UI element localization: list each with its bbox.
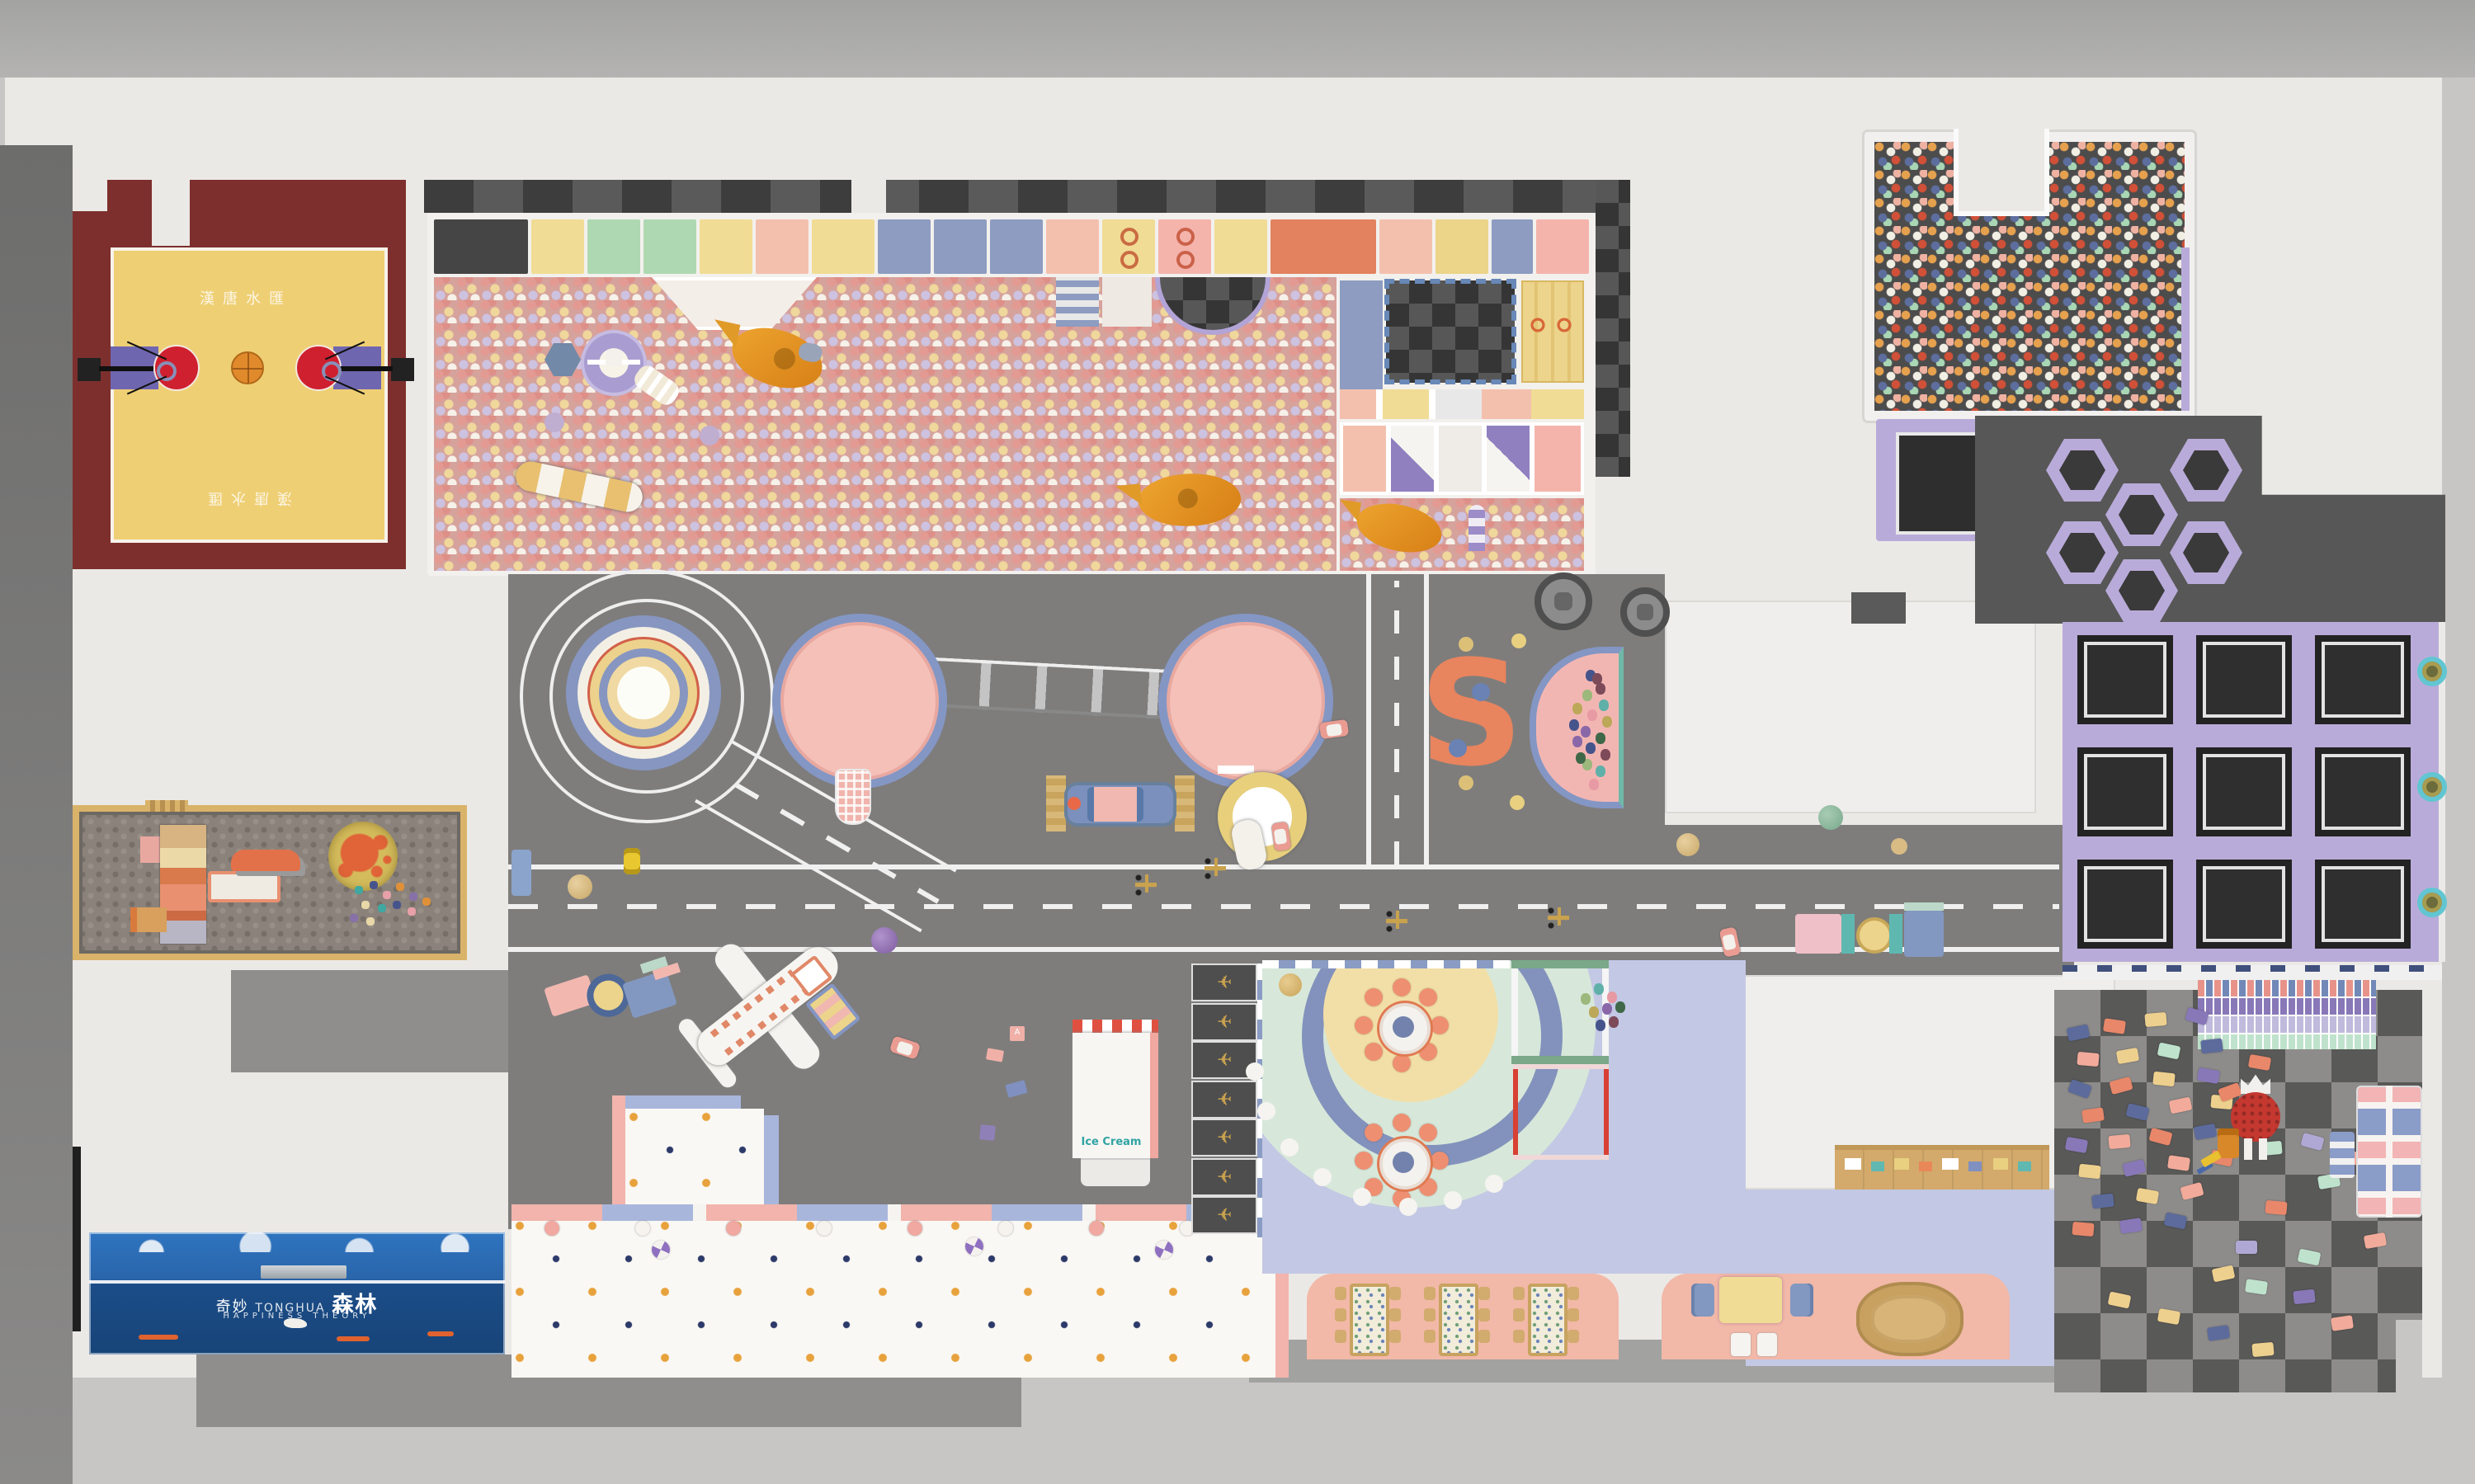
grid-cell-tri2 [1487,426,1530,492]
trampoline-bed [2084,866,2166,942]
ocean-mural: 奇妙 TONGHUA 森林 HAPPINESS THEORY [89,1232,505,1354]
hoop-base-left [78,358,101,381]
candy-ball [907,1221,922,1236]
ballpit-panel-1 [532,219,585,274]
left-dark-wall [0,145,73,1484]
balloon [1586,742,1595,753]
balloon [1576,752,1585,763]
lego-brick [2197,1067,2220,1084]
ballpit-panel-14 [1270,219,1376,274]
ballpit-panel-16 [1435,219,1487,274]
court-name-bottom: 漢唐水匯 [163,488,328,510]
spinning-top-2 [1620,587,1670,637]
lego-slide-small [2330,1132,2355,1178]
basketball-zone-step [73,180,107,211]
c2-blue-chair-2 [1790,1284,1813,1317]
foam-pit-notch [1954,129,2049,216]
c2-blue-chair-1 [1691,1284,1714,1317]
party-balloon [1594,983,1603,994]
lego-brick [2108,1291,2132,1308]
ball-tan-1 [568,874,592,899]
ballpit-panel-row [434,219,1589,274]
right-room-panelstrip [1340,389,1584,419]
floor-dot [1485,1175,1503,1193]
lego-brick [2103,1018,2126,1034]
lego-brick [2122,1159,2146,1177]
balloon [1600,749,1610,760]
party-stool [1392,978,1410,996]
party-green-shelf-1 [1511,960,1609,968]
sand-toy [370,881,378,889]
lego-brick [2185,1007,2209,1025]
pink-platform-2 [1158,614,1333,789]
party-stool [1392,1053,1410,1072]
s-sculpture: S [1419,640,1501,792]
lego-brick [2072,1222,2094,1237]
mural-foliage [89,1232,505,1252]
trampoline-cell-6 [2315,747,2411,836]
spring-rider-icon: ✈ [1193,1120,1256,1152]
spring-rider-icon: ✈ [1193,1004,1256,1035]
lego-brick [2091,1194,2114,1209]
party-green-shelf-2 [1511,1056,1609,1064]
balloon [1592,673,1601,684]
lego-brick [2265,1200,2287,1215]
trampoline-bed [2203,642,2285,718]
sand-pit-ladder [145,800,188,812]
ballpit-panel-11 [1102,219,1155,274]
dining-chair [1389,1287,1401,1300]
party-gold-ball [1279,973,1302,996]
grid-cell-tri [1391,426,1434,492]
balloon [1596,766,1605,776]
dining-chair [1567,1330,1579,1343]
party-stool [1419,988,1437,1006]
sand-toy [355,886,363,894]
dining-chair [1567,1287,1579,1300]
right-room-blue-wall [1340,280,1383,396]
lego-brick [2077,1052,2099,1067]
toy-block-4 [979,1124,996,1141]
top-wall-band [0,0,2475,78]
tricycle-2 [1386,911,1407,932]
dining-chair [1478,1287,1490,1300]
sand-toy [408,907,416,916]
right-room-grid [1340,422,1584,495]
lego-brick [2200,1039,2223,1054]
csofa-pink [1795,914,1841,954]
party-balloon [1607,992,1616,1002]
toddler-wall-blue-top [625,1095,741,1109]
party-balloon [1602,1003,1611,1014]
trampoline-cell-5 [2196,747,2292,836]
lego-brick [2109,1076,2133,1095]
dining-chair [1513,1330,1525,1343]
sand-wave-bridge [231,850,300,871]
s-dot-blue-1 [1472,683,1490,701]
c2-oval-booth [1856,1282,1963,1356]
foam-pit-purple-edge [2181,247,2190,411]
toddler-floor-lower [511,1218,1287,1378]
lego-brick [2148,1128,2172,1146]
road-vert-dashes [1394,581,1399,864]
basketball-icon [231,351,264,384]
trampoline-cell-3 [2315,635,2411,724]
train-nose [1068,797,1081,810]
party-frame-bottom [1513,1155,1609,1160]
lego-brick [2207,1325,2230,1340]
bench-blue-left [511,850,531,896]
lego-slide-large [2356,1086,2422,1218]
party-stool [1430,1151,1448,1169]
party-wall-striped [1262,960,1510,968]
party-stool [1365,1043,1383,1061]
lego-brick [2298,1248,2322,1265]
ballpit-mat [1102,277,1152,327]
lego-brick [2248,1054,2271,1071]
party-frame-top [1513,1064,1609,1069]
s-letter: S [1419,629,1524,799]
trampoline-cell-1 [2077,635,2173,724]
lego-brick [2164,1212,2188,1229]
ballpit-panel-9 [990,219,1043,274]
lego-brick [2364,1232,2387,1249]
sand-slide [208,871,280,902]
party-balloon [1609,1016,1618,1027]
floor-dot [1399,1198,1417,1216]
brick-figure-legs [2244,1138,2267,1160]
s-dot-blue-2 [1449,739,1467,757]
candy-ball [1089,1221,1104,1236]
slide-divider [2386,1086,2392,1218]
balloon [1589,779,1598,789]
lego-brick [2180,1182,2204,1200]
party-table-2 [1379,1138,1431,1190]
floor-dot [1280,1138,1299,1157]
ballpit-panel-17 [1491,219,1533,274]
mural-bench [261,1265,346,1279]
lego-brick [2125,1103,2149,1121]
court-name-top: 漢唐水匯 [163,287,328,309]
dining-chair [1335,1287,1346,1300]
spring-rider-icon: ✈ [1193,1198,1256,1229]
dining-chair [1389,1330,1401,1343]
dining-chair [1513,1308,1525,1321]
road-vert-left [1366,574,1370,866]
party-stool [1354,1015,1372,1034]
road-dashes-center [508,904,2059,909]
dining-chair [1478,1308,1490,1321]
trampoline-cell-8 [2196,860,2292,949]
ballpit-top-walkway [424,180,1630,213]
toddler-room-upper [625,1109,764,1218]
lego-brick [2152,1072,2176,1087]
lego-brick [2108,1134,2130,1149]
sand-toy [409,893,417,901]
grid-cell-white [1439,426,1482,492]
mural-waterline [89,1280,505,1284]
dining-table-1 [1350,1284,1389,1356]
play-train-body [1064,782,1176,827]
trampoline-cell-2 [2196,635,2292,724]
ballpit-right-walkway [1596,180,1630,477]
lego-brick [2081,1107,2105,1123]
spring-rider-6: ✈ [1191,1157,1257,1195]
lego-brick [2331,1315,2354,1331]
balloon [1581,726,1590,737]
left-black-strip [73,1147,81,1331]
party-balloon [1596,1020,1605,1030]
sand-toy [383,891,391,899]
party-zone [1262,960,1746,1274]
pit-cube [606,350,622,366]
lego-brick [2245,1279,2268,1294]
sand-climb-ramp [140,836,160,863]
c2-white-chair-2 [1757,1333,1777,1356]
kitchen-items [1845,1158,2039,1173]
tricycle-1 [1135,874,1157,896]
ballpit-panel-13 [1214,219,1267,274]
lego-brick [2157,1042,2181,1059]
sand-toy [378,904,386,912]
monkey-ring [1176,228,1195,246]
mural-fish-3 [427,1331,454,1336]
lego-brick [2293,1289,2316,1305]
playground-floor-plan: 漢唐水匯 漢唐水匯 奇妙 TONGHUA 森林 HAPPINESS THEORY [0,0,2475,1484]
balloon [1572,703,1582,714]
trampoline-bed [2322,754,2404,830]
lego-brick [2169,1096,2193,1114]
balloon [1582,690,1591,700]
dining-chair [1478,1330,1490,1343]
balloon [1596,683,1605,694]
block-letter: A [1015,1028,1021,1038]
trampoline-bed [2322,642,2404,718]
party-stool [1354,1151,1372,1169]
sand-toy [366,917,375,926]
court-entrance-pillar [152,180,190,246]
party-balloon [1615,1001,1624,1012]
road-line-top [508,864,2059,869]
mural-bird [284,1318,307,1328]
pit-purple-ball-1 [544,412,564,432]
s-dot-gold-2 [1459,775,1473,790]
trampoline-cell-9 [2315,860,2411,949]
dining-chair [1424,1308,1435,1321]
striped-pole [1468,505,1485,551]
dunk-ring-3 [2417,888,2447,917]
trampoline-bed [2084,642,2166,718]
lego-brick [2236,1241,2257,1254]
sand-toy [393,901,401,909]
toy-bus-yellow [624,848,640,874]
sand-block-small [130,907,167,932]
spring-rider-4: ✈ [1191,1080,1257,1118]
party-wall-v1 [1511,968,1518,1058]
grid-cell-pink2 [1534,426,1581,492]
ballpit-panel-3 [644,219,697,274]
right-room-darkfloor [1386,280,1515,383]
ballpit-panel-7 [879,219,931,274]
walkway-gap [851,180,886,213]
balloon [1602,716,1611,727]
balloon [1572,736,1582,747]
mesh-climb-tube [835,769,871,825]
lego-brick [2212,1265,2236,1282]
sand-toy [361,901,370,909]
train-canopy [1087,787,1143,822]
trampoline-cell-7 [2077,860,2173,949]
white-room-block [1666,602,2034,812]
lego-brick [2065,1137,2088,1153]
brick-robot [2218,1128,2239,1158]
lego-brick [2144,1012,2166,1027]
toddler-border-wall [511,1204,1287,1221]
balloon [1599,700,1608,710]
party-stool [1419,1124,1437,1142]
monkey-ring [1120,251,1138,269]
truck-cab [1081,1158,1150,1186]
ball-tan-3 [1891,838,1907,855]
ballpit-panel-0 [434,219,529,274]
ballpit-panel-6 [812,219,875,274]
spring-rider-icon: ✈ [1193,1159,1256,1190]
mural-fish-1 [139,1335,178,1340]
party-table-1 [1379,1003,1431,1054]
dining-chair [1335,1308,1346,1321]
dining-table-2 [1439,1284,1478,1356]
ballpit-ramp [1056,277,1099,327]
sand-corridor [231,970,520,1072]
party-balloon [1589,1006,1598,1017]
party-stool [1392,1113,1410,1131]
spring-rider-2: ✈ [1191,1002,1257,1040]
pit-purple-ball-2 [700,426,719,445]
csofa-blue [1904,911,1944,957]
party-balloon [1581,993,1590,1004]
dining-chair [1567,1308,1579,1321]
lego-brick [2067,1079,2092,1099]
trampoline-bed [2203,866,2285,942]
party-red-frame-l [1513,1064,1518,1160]
spring-rider-7: ✈ [1191,1196,1257,1234]
party-stool [1430,1015,1448,1034]
mural-fish-2 [337,1336,370,1341]
ballpit-panel-15 [1379,219,1431,274]
candy-ball [817,1221,832,1236]
candy-ball [635,1221,650,1236]
balloon [1596,733,1605,743]
candy-ball [998,1221,1013,1236]
play-train-ramp-left [1046,775,1066,832]
hoop-base-right [391,358,414,381]
ballpit-panel-12 [1158,219,1211,274]
sofa-blue [622,970,677,1019]
spring-rider-icon: ✈ [1193,965,1256,996]
spring-rider-icon: ✈ [1193,1081,1256,1113]
ballpit-panel-2 [588,219,641,274]
sand-toy [350,914,358,922]
dining-chair [1335,1330,1346,1343]
grid-cell-pink [1343,426,1386,492]
csofa-drum [1856,917,1893,954]
dining-chair [1424,1330,1435,1343]
truck-awning [1072,1020,1158,1033]
pink-platform-1 [772,614,947,789]
floor-dot [1353,1188,1371,1206]
floor-dot [1444,1191,1462,1209]
floor-dot [1246,1062,1264,1081]
dunk-ring-2 [2417,772,2447,802]
sand-toy [422,897,431,906]
sand-toy [396,883,404,891]
dining-chair [1424,1287,1435,1300]
candy-ball [544,1221,559,1236]
lego-brick [2119,1218,2143,1233]
trampoline-cell-4 [2077,747,2173,836]
play-kitchen-counter [1835,1145,2049,1190]
lego-brick [2300,1133,2324,1151]
monkey-ring [1120,228,1138,246]
dining-chair [1389,1308,1401,1321]
tricycle-3 [1548,907,1569,929]
lego-brick [2194,1124,2217,1140]
tricycle-4 [1204,858,1226,879]
lego-brick [2116,1048,2139,1064]
toy-block-a: A [1010,1026,1025,1041]
candy-ball [726,1221,741,1236]
sand-climb-tower [160,825,206,944]
ballpit-panel-8 [935,219,988,274]
ball-tan-2 [1676,833,1699,856]
lego-brick [2157,1308,2180,1325]
grid-walkway [2062,965,2442,980]
balloon [1587,709,1596,720]
lego-brick [2167,1155,2190,1171]
dining-table-3 [1528,1284,1567,1356]
sand-toys-cluster [346,878,437,927]
balloon [1569,719,1578,730]
party-red-frame-r [1604,1064,1609,1160]
play-train-ramp-right [1175,775,1195,832]
hoop-arm-right [338,366,393,371]
dunk-ring-1 [2417,657,2447,686]
dining-chair [1513,1287,1525,1300]
ball-green [1818,805,1843,830]
floor-dot [1313,1168,1332,1186]
c2-white-chair-1 [1731,1333,1751,1356]
ballpit-panel-4 [700,219,752,274]
trampoline-bed [2322,866,2404,942]
booth-inner [1871,1295,1949,1343]
floor-dot [1257,1102,1275,1120]
corridor-sofa [1795,911,1947,960]
platform2-ledge [1218,766,1254,774]
s-dot-gold-1 [1459,637,1473,652]
carousel-center [617,667,670,719]
lego-brick [2136,1188,2159,1204]
hoop-arm-left [99,366,153,371]
lego-brick [2251,1342,2274,1357]
ice-cream-truck: Ice Cream [1072,1020,1158,1185]
c2-yellow-table [1719,1277,1782,1323]
ballpit-panel-10 [1046,219,1099,274]
trampoline-bed [2203,754,2285,830]
csofa-teal2 [1889,914,1902,954]
spinning-top-1 [1534,572,1592,630]
ball-purple [871,927,898,954]
white-room-notch [1851,592,1906,624]
